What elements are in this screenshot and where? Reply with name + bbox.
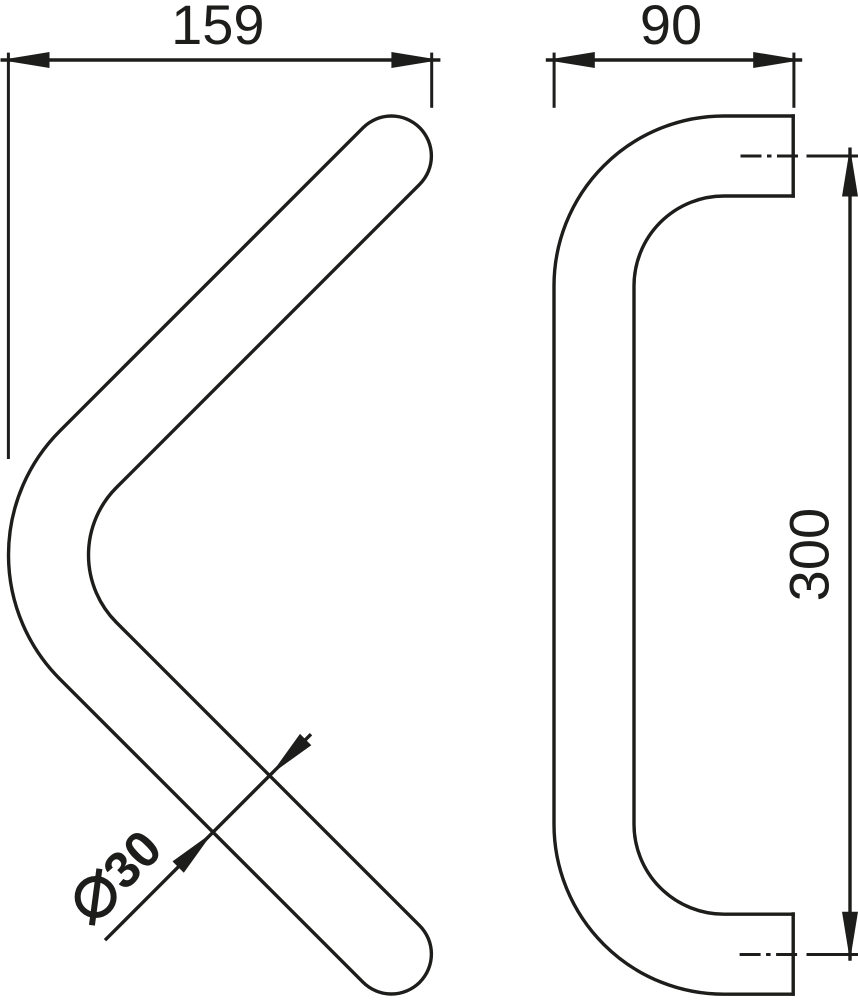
svg-text:300: 300 (778, 508, 841, 601)
svg-text:159: 159 (171, 0, 264, 56)
svg-text:90: 90 (640, 0, 702, 56)
